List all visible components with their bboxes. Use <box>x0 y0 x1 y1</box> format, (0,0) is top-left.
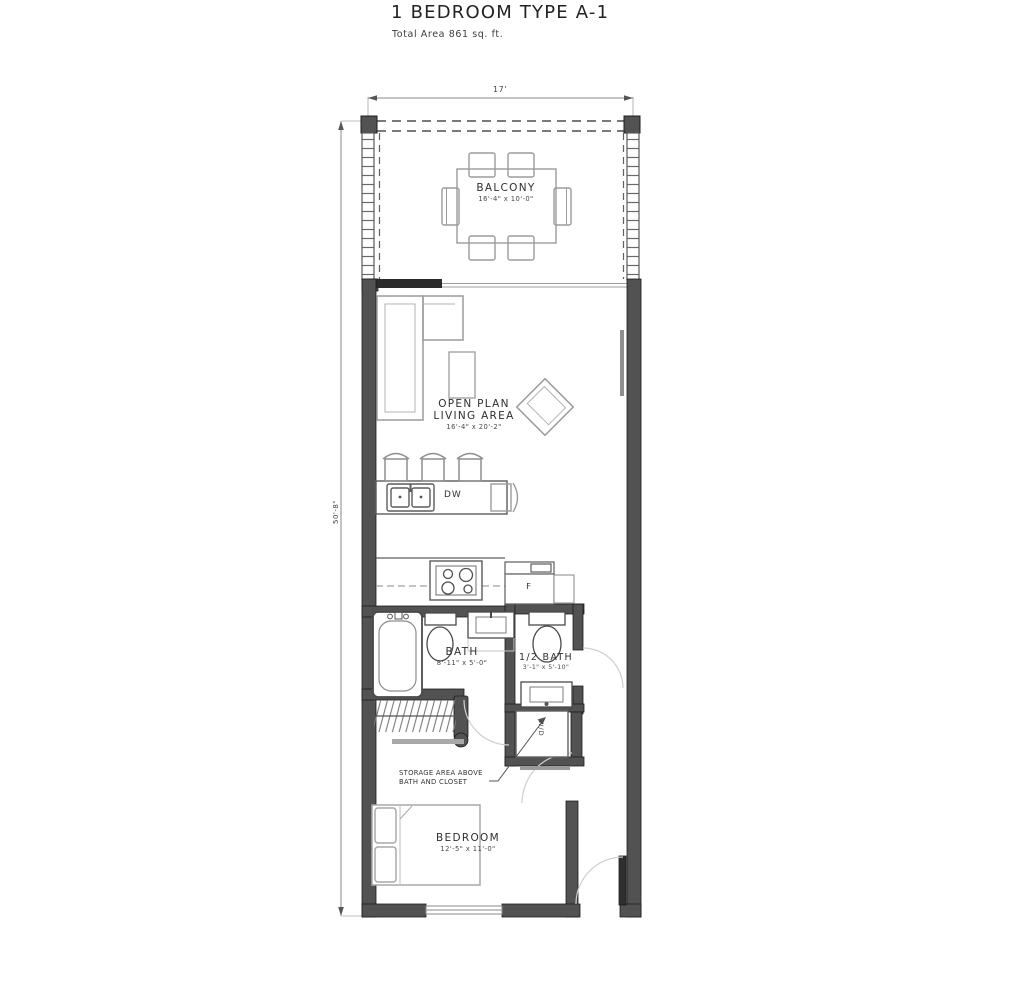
wall-bottom-mid <box>502 904 580 917</box>
kitchen-island <box>376 481 507 514</box>
coffee-table <box>449 352 475 398</box>
bath-door-swing <box>464 700 509 745</box>
dining-table-set <box>442 153 571 260</box>
bed-pillow <box>375 847 396 882</box>
top-dimension-line <box>368 95 633 121</box>
dining-chair <box>469 236 495 260</box>
closet-shelf <box>392 739 464 744</box>
bar-stools <box>383 454 483 482</box>
balcony-railing-right <box>627 133 639 280</box>
dining-chair <box>508 236 534 260</box>
living-label: OPEN PLAN LIVING AREA 16'-4" x 20'-2" <box>415 398 533 431</box>
bar-stool <box>385 459 407 481</box>
living-name: OPEN PLAN LIVING AREA <box>415 398 533 422</box>
microwave-shelf <box>505 562 554 574</box>
fridge <box>505 574 574 604</box>
sliding-door-wall <box>362 279 627 291</box>
halfbath-label: 1/2 BATH 3'-1" x 5'-10" <box>519 652 573 671</box>
fridge-label: F <box>526 582 531 591</box>
balcony-label: BALCONY 16'-4" x 10'-0" <box>476 182 535 203</box>
bed-pillow <box>375 808 396 843</box>
bar-stool <box>422 459 444 481</box>
dining-chair <box>508 153 534 177</box>
wall-halfbath-right-upper <box>573 604 583 650</box>
halfbath-door-swing <box>583 648 623 688</box>
cooktop <box>430 561 482 600</box>
wall-bottom-left <box>362 904 426 917</box>
closet <box>372 700 464 744</box>
bath-label: BATH 8'-11" x 5'-0" <box>437 646 487 667</box>
bedroom-label: BEDROOM 12'-5" x 11'-0" <box>436 832 500 853</box>
dining-table <box>457 169 556 243</box>
storage-note: STORAGE AREA ABOVE BATH AND CLOSET <box>399 769 483 787</box>
bath-size: 8'-11" x 5'-0" <box>437 659 487 667</box>
dining-chair <box>469 153 495 177</box>
bedroom-size: 12'-5" x 11'-0" <box>436 845 500 853</box>
wall-closet-stub <box>454 696 468 738</box>
balcony-railing-left <box>362 133 374 280</box>
top-dimension-text: 17' <box>493 85 507 94</box>
washer-dryer-label: W/D <box>537 720 545 737</box>
balcony-post-right <box>624 116 640 133</box>
entry-door-leaf <box>619 856 626 905</box>
wall-bottom-right <box>620 904 641 917</box>
counter-right <box>554 575 574 603</box>
bath-name: BATH <box>437 646 487 658</box>
wall-right <box>627 279 641 917</box>
left-dimension-text: 50'-8" <box>332 500 340 524</box>
floorplan-sheet: 1 BEDROOM TYPE A-1 Total Area 861 sq. ft… <box>0 0 1012 987</box>
halfbath-size: 3'-1" x 5'-10" <box>519 664 573 671</box>
wd-door-leaf <box>520 766 570 770</box>
bathtub <box>373 612 422 697</box>
left-dimension-line <box>338 121 362 916</box>
halfbath-sink <box>521 682 572 707</box>
entry-door-swing <box>576 857 623 904</box>
dishwasher-label: DW <box>444 490 462 500</box>
living-size: 16'-4" x 20'-2" <box>415 423 533 431</box>
halfbath-name: 1/2 BATH <box>519 652 573 663</box>
balcony-post-left <box>361 116 377 133</box>
storage-note-line2: BATH AND CLOSET <box>399 778 483 787</box>
bedroom-window <box>426 906 502 914</box>
wall-wd-right <box>571 712 582 762</box>
storage-note-line1: STORAGE AREA ABOVE <box>399 769 483 778</box>
sliding-door-track <box>442 284 627 288</box>
balcony-name: BALCONY <box>476 182 535 194</box>
tv <box>620 330 624 396</box>
plan-linework <box>0 0 1012 987</box>
balcony-size: 16'-4" x 10'-0" <box>476 195 535 203</box>
sliding-door-panel <box>376 279 442 288</box>
bedroom-name: BEDROOM <box>436 832 500 844</box>
bar-stool <box>459 459 481 481</box>
